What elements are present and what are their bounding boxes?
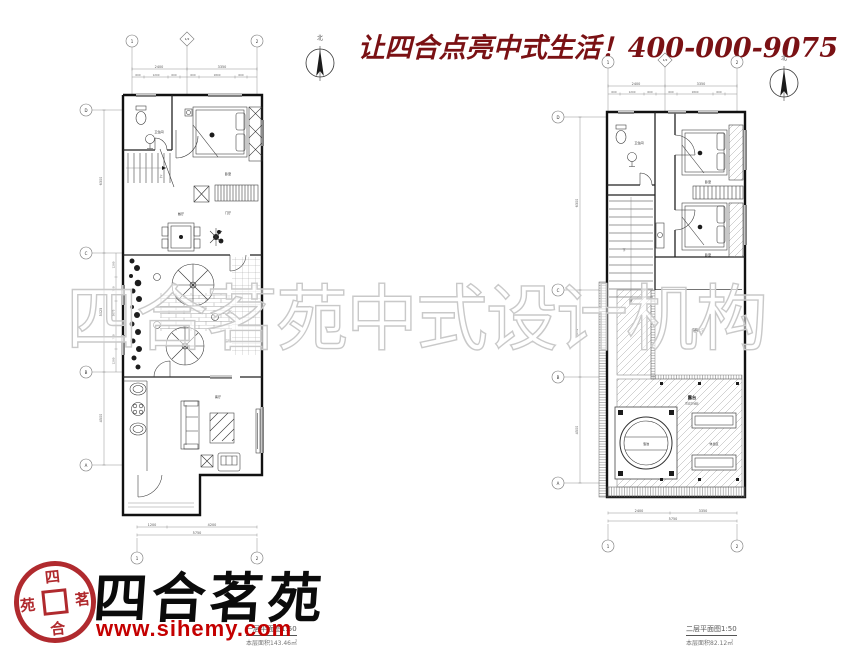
svg-text:600: 600 bbox=[171, 73, 176, 77]
axis-bubble-label: D bbox=[84, 108, 87, 113]
room-label: 餐厅 bbox=[178, 211, 184, 216]
seal-char: 茗 bbox=[74, 588, 91, 610]
axis-bubble-label: 1/2 bbox=[185, 37, 190, 41]
axis-bubble-label: C bbox=[85, 251, 88, 256]
bottom-hatch-strip bbox=[607, 487, 745, 497]
svg-text:4200: 4200 bbox=[208, 523, 217, 527]
stairs-icon: 上 bbox=[126, 149, 174, 187]
svg-text:4500: 4500 bbox=[575, 426, 579, 435]
svg-text:600: 600 bbox=[647, 90, 652, 94]
nightstand-icon bbox=[185, 109, 192, 116]
bed-icon bbox=[193, 107, 247, 157]
seal-char: 苑 bbox=[19, 594, 36, 616]
armchair-icon bbox=[218, 453, 240, 471]
bathroom: 卫生间 bbox=[136, 106, 164, 149]
bedroom-2: 卧室 bbox=[656, 203, 743, 257]
north-label: 北 bbox=[317, 34, 323, 42]
svg-text:3075: 3075 bbox=[575, 329, 579, 338]
axis-bubble-label: B bbox=[557, 375, 560, 380]
company-seal-logo: 四 茗 合 苑 bbox=[10, 557, 100, 647]
room-label: 卧室 bbox=[705, 252, 711, 257]
courtyard: 庭院 bbox=[129, 257, 260, 370]
stairs-icon: 下 bbox=[609, 197, 653, 303]
room-label: 卫生间 bbox=[154, 129, 163, 134]
svg-text:1800: 1800 bbox=[692, 90, 699, 94]
dimension-left: 6300 3075 4500 bbox=[575, 117, 582, 483]
kitchen-sink-icon bbox=[130, 423, 146, 435]
seal-char: 合 bbox=[49, 617, 66, 639]
svg-text:4500: 4500 bbox=[99, 414, 103, 423]
svg-text:750: 750 bbox=[112, 286, 116, 291]
room-label: 卫生间 bbox=[634, 140, 643, 145]
svg-text:1200: 1200 bbox=[153, 73, 160, 77]
chair-icon bbox=[162, 227, 168, 236]
rock-border bbox=[129, 259, 142, 370]
svg-text:600: 600 bbox=[135, 73, 140, 77]
plant-icon bbox=[210, 228, 223, 246]
coffee-table-icon bbox=[201, 455, 213, 467]
parapet bbox=[651, 375, 742, 379]
void-area bbox=[655, 290, 742, 375]
room-label: 卧室 bbox=[225, 171, 231, 176]
plan-title: 二层平面图1:50 bbox=[686, 624, 737, 636]
svg-text:750: 750 bbox=[112, 334, 116, 339]
living-room: 客厅 bbox=[123, 381, 260, 471]
svg-text:1200: 1200 bbox=[148, 523, 157, 527]
parapet bbox=[651, 290, 655, 379]
axis-bubble-label: 2 bbox=[256, 39, 259, 44]
sofa-icon bbox=[181, 401, 199, 449]
svg-text:600: 600 bbox=[190, 73, 195, 77]
terrace-note: 防腐木铺装 bbox=[685, 402, 699, 406]
second-floor-plan: 1 1/2 2 2400 3350 600 1200 600 600 1800 … bbox=[540, 45, 800, 570]
svg-text:3350: 3350 bbox=[699, 509, 708, 513]
pool-icon: 泡池 bbox=[615, 407, 677, 479]
kitchen-sink-icon bbox=[130, 383, 146, 395]
axis-bubble-label: 1/2 bbox=[663, 58, 668, 62]
paving-grid bbox=[232, 257, 260, 355]
dimension-top: 2400 3350 600 1200 600 600 1800 600 bbox=[608, 82, 737, 96]
svg-text:3075: 3075 bbox=[112, 309, 116, 316]
svg-text:6300: 6300 bbox=[99, 177, 103, 186]
toilet-icon bbox=[616, 131, 626, 144]
svg-text:1200: 1200 bbox=[112, 261, 116, 268]
dimension-top: 2400 3350 600 1200 600 600 1800 600 bbox=[132, 65, 257, 79]
wardrobe-icon bbox=[249, 107, 262, 161]
pillow-icon bbox=[236, 113, 245, 130]
stairs-direction-label: 下 bbox=[622, 248, 625, 252]
terrace: 庭院上空 露台 防腐木铺装 泡池 休息区 bbox=[607, 290, 745, 497]
bed-icon bbox=[682, 130, 727, 175]
room-label: 庭院上空 bbox=[692, 327, 704, 332]
website-url[interactable]: www.sihemy.com bbox=[96, 616, 292, 642]
svg-text:600: 600 bbox=[611, 90, 616, 94]
grid-axes-top: 1 1/2 2 bbox=[126, 32, 263, 95]
bathroom: 卫生间 bbox=[616, 125, 644, 167]
door-icon bbox=[640, 135, 695, 230]
room-label: 门厅 bbox=[225, 210, 231, 215]
dimension-bottom: 2400 3350 5750 1 2 bbox=[602, 509, 743, 552]
svg-text:3350: 3350 bbox=[697, 82, 706, 86]
north-compass-icon: 北 bbox=[300, 28, 340, 86]
sink-icon bbox=[628, 153, 637, 162]
first-floor-plan: 1 1/2 2 2400 3350 600 1200 600 600 1800 … bbox=[60, 25, 300, 570]
axis-bubble-label: 2 bbox=[736, 60, 739, 65]
plan-caption-second-floor: 二层平面图1:50 本层面积82.12㎡ bbox=[686, 624, 737, 647]
chair-icon bbox=[194, 239, 200, 248]
svg-text:2400: 2400 bbox=[155, 65, 164, 69]
grid-axes-top: 1 1/2 2 bbox=[602, 53, 743, 112]
axis-bubble-label: B bbox=[85, 370, 88, 375]
svg-text:600: 600 bbox=[716, 90, 721, 94]
svg-text:600: 600 bbox=[668, 90, 673, 94]
stepping-stone-icon bbox=[154, 274, 161, 281]
stove-icon bbox=[132, 403, 145, 416]
svg-text:600: 600 bbox=[238, 73, 243, 77]
tree-icon bbox=[172, 264, 214, 306]
svg-text:2400: 2400 bbox=[635, 509, 644, 513]
wardrobe-icon bbox=[729, 125, 743, 180]
sink-icon bbox=[146, 135, 155, 144]
stairs-direction-label: 上 bbox=[159, 173, 162, 178]
toilet-icon bbox=[136, 112, 146, 125]
plan-area: 本层面积82.12㎡ bbox=[686, 638, 737, 647]
svg-text:1200: 1200 bbox=[112, 357, 116, 364]
svg-text:3350: 3350 bbox=[218, 65, 227, 69]
svg-text:5750: 5750 bbox=[193, 531, 202, 535]
axis-bubble-label: 2 bbox=[736, 544, 739, 549]
axis-bubble-label: A bbox=[85, 463, 88, 468]
bedroom: 卧室 bbox=[185, 107, 262, 202]
svg-text:1800: 1800 bbox=[214, 73, 221, 77]
deck-strip bbox=[617, 290, 651, 375]
room-label: 客厅 bbox=[215, 394, 221, 399]
kitchen-fixtures bbox=[123, 381, 147, 471]
room-label: 休息区 bbox=[709, 441, 718, 446]
rug bbox=[210, 413, 234, 443]
closet-rail-icon bbox=[693, 186, 743, 199]
tv-icon bbox=[256, 409, 260, 453]
axis-bubble-label: 1 bbox=[131, 39, 134, 44]
seal-char: 四 bbox=[44, 565, 61, 587]
room-label: 泡池 bbox=[643, 441, 649, 446]
dining-area: 餐厅 门厅 bbox=[162, 210, 231, 251]
brick-path bbox=[160, 293, 232, 331]
chair-icon bbox=[162, 239, 168, 248]
dimension-left: 6300 5025 4500 1200 750 3075 750 1200 bbox=[99, 110, 118, 465]
svg-text:6300: 6300 bbox=[575, 199, 579, 208]
exterior-stair-strip bbox=[599, 282, 607, 497]
axis-bubble-label: 1 bbox=[607, 60, 610, 65]
axis-bubble-label: D bbox=[556, 115, 559, 120]
axis-bubble-label: A bbox=[557, 481, 560, 486]
svg-text:2400: 2400 bbox=[632, 82, 641, 86]
room-label: 庭院 bbox=[225, 338, 231, 343]
tree-icon bbox=[166, 327, 204, 365]
axis-bubble-label: 1 bbox=[607, 544, 610, 549]
axis-bubble-label: C bbox=[557, 288, 560, 293]
closet-rail-icon bbox=[215, 185, 258, 201]
cabinet-icon bbox=[656, 223, 664, 248]
svg-text:1200: 1200 bbox=[629, 90, 636, 94]
chair-icon bbox=[194, 227, 200, 236]
seal-center-square bbox=[41, 588, 68, 615]
wardrobe-icon bbox=[729, 203, 743, 257]
stepping-stone-icon bbox=[154, 322, 161, 329]
svg-text:5750: 5750 bbox=[669, 517, 678, 521]
room-label: 卧室 bbox=[705, 179, 711, 184]
room-label: 露台 bbox=[688, 394, 696, 401]
pillow-icon bbox=[236, 134, 245, 151]
bedroom-1: 卧室 bbox=[682, 125, 743, 184]
svg-text:5025: 5025 bbox=[99, 308, 103, 317]
